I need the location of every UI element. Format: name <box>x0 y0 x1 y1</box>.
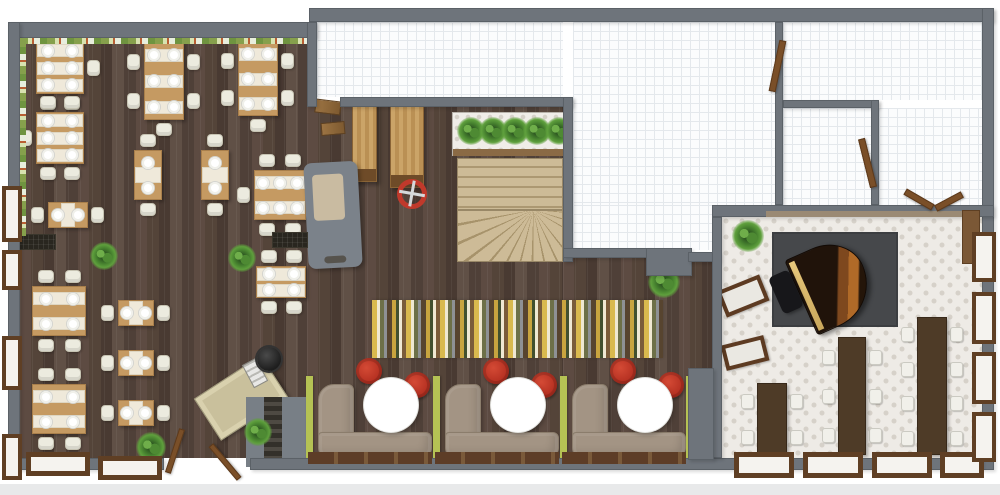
plate <box>242 73 254 85</box>
plate <box>262 73 274 85</box>
booth-window-sill[interactable] <box>308 452 432 464</box>
booth-divider-panel[interactable] <box>560 376 567 460</box>
chair[interactable] <box>281 90 294 106</box>
wall-room-divider-2 <box>783 100 879 108</box>
plate <box>148 101 160 113</box>
plate <box>274 177 286 189</box>
plate <box>263 268 275 280</box>
banquet-table[interactable] <box>757 383 787 455</box>
dining-table-4-seat[interactable] <box>32 286 86 336</box>
room-top-right-floor-ext <box>573 205 712 250</box>
dining-table-6-seat[interactable] <box>254 170 306 220</box>
table-runner <box>135 167 161 183</box>
bar-counter[interactable] <box>390 104 424 188</box>
chair[interactable] <box>38 368 54 381</box>
chair[interactable] <box>286 250 302 263</box>
plate <box>42 62 54 74</box>
plate <box>67 293 79 305</box>
chair[interactable] <box>901 362 914 377</box>
plate <box>288 268 300 280</box>
wall-room-divider-3 <box>871 100 879 205</box>
wood-shelf[interactable] <box>314 98 342 115</box>
chair[interactable] <box>157 305 170 321</box>
plate <box>72 209 84 221</box>
window[interactable] <box>2 336 22 390</box>
wall-stair-right <box>563 97 573 262</box>
plate <box>67 391 79 403</box>
chair[interactable] <box>790 394 803 409</box>
window[interactable] <box>26 452 90 476</box>
room-top-center-floor <box>317 22 563 97</box>
plate <box>168 49 180 61</box>
staircase-winder[interactable] <box>457 210 563 262</box>
chair[interactable] <box>869 350 882 365</box>
chair[interactable] <box>259 154 275 167</box>
booth-divider-panel[interactable] <box>433 376 440 460</box>
wood-shelf[interactable] <box>320 121 345 136</box>
chair[interactable] <box>127 54 140 70</box>
chair[interactable] <box>901 327 914 342</box>
plate <box>52 209 64 221</box>
floor-mat[interactable] <box>272 232 308 248</box>
chair[interactable] <box>156 123 172 136</box>
chair[interactable] <box>207 134 223 147</box>
plate <box>139 357 151 369</box>
plate <box>168 75 180 87</box>
floor-plan <box>0 0 1000 495</box>
window[interactable] <box>734 452 794 478</box>
chair[interactable] <box>31 207 44 223</box>
plate <box>142 182 154 194</box>
chair[interactable] <box>790 430 803 445</box>
chair[interactable] <box>187 54 200 70</box>
chair[interactable] <box>87 60 100 76</box>
window[interactable] <box>803 452 863 478</box>
chair[interactable] <box>65 339 81 352</box>
chair[interactable] <box>901 431 914 446</box>
chair[interactable] <box>741 394 754 409</box>
plate <box>139 407 151 419</box>
chair[interactable] <box>65 437 81 450</box>
banquet-table[interactable] <box>917 317 947 455</box>
window[interactable] <box>972 352 996 404</box>
exterior-ground <box>0 484 1000 495</box>
chair[interactable] <box>869 389 882 404</box>
chair[interactable] <box>822 428 835 443</box>
chair[interactable] <box>285 154 301 167</box>
chair[interactable] <box>261 250 277 263</box>
plate <box>42 115 54 127</box>
dining-table-4-seat[interactable] <box>32 384 86 434</box>
chair[interactable] <box>950 327 963 342</box>
plate <box>209 182 221 194</box>
chair[interactable] <box>38 339 54 352</box>
dining-table-6-seat[interactable] <box>238 42 278 116</box>
plate <box>257 202 269 214</box>
plate <box>40 293 52 305</box>
dining-table-2-seat[interactable] <box>118 300 154 326</box>
chair[interactable] <box>286 301 302 314</box>
plate <box>67 318 79 330</box>
chair[interactable] <box>140 134 156 147</box>
potted-plant[interactable] <box>228 244 256 272</box>
planter-box[interactable] <box>452 112 568 156</box>
plate <box>148 75 160 87</box>
dining-table-6-seat[interactable] <box>36 112 84 164</box>
plate <box>66 115 78 127</box>
service-counter[interactable] <box>303 161 362 270</box>
plate <box>121 357 133 369</box>
chair[interactable] <box>101 305 114 321</box>
chair[interactable] <box>38 270 54 283</box>
chair[interactable] <box>901 396 914 411</box>
chair[interactable] <box>91 207 104 223</box>
dining-table-4-seat[interactable] <box>256 266 306 298</box>
chair[interactable] <box>869 428 882 443</box>
window[interactable] <box>2 434 22 480</box>
plate <box>42 132 54 144</box>
wall-step-a <box>563 248 651 258</box>
banquet-table-top <box>757 383 787 455</box>
table-runner <box>202 167 228 183</box>
window[interactable] <box>98 456 162 480</box>
chair[interactable] <box>822 389 835 404</box>
window[interactable] <box>972 232 996 282</box>
chair[interactable] <box>101 355 114 371</box>
banquet-table-top <box>917 317 947 455</box>
ceiling-fan[interactable] <box>397 179 427 209</box>
wall-step-block <box>646 248 692 276</box>
dining-table-6-seat[interactable] <box>36 42 84 94</box>
dining-table-2-seat[interactable] <box>201 150 229 200</box>
floor-mat[interactable] <box>18 234 56 250</box>
green-wall-strip-top <box>20 38 307 44</box>
chair[interactable] <box>64 96 80 109</box>
plate <box>121 407 133 419</box>
plate <box>66 45 78 57</box>
plate <box>66 132 78 144</box>
chair[interactable] <box>38 437 54 450</box>
chair[interactable] <box>281 53 294 69</box>
window[interactable] <box>872 452 932 478</box>
staircase-upper-flight[interactable] <box>457 158 563 210</box>
chair[interactable] <box>127 93 140 109</box>
chair[interactable] <box>822 350 835 365</box>
chair[interactable] <box>65 270 81 283</box>
chair[interactable] <box>250 119 266 132</box>
plate <box>42 45 54 57</box>
chair[interactable] <box>221 53 234 69</box>
plate <box>40 416 52 428</box>
striped-area-rug[interactable] <box>372 300 663 358</box>
chair[interactable] <box>741 430 754 445</box>
booth-divider-panel[interactable] <box>306 376 313 460</box>
dining-table-2-seat[interactable] <box>118 400 154 426</box>
potted-plant[interactable] <box>244 418 272 446</box>
chair[interactable] <box>40 167 56 180</box>
room-far-right-upper-floor <box>783 22 982 100</box>
chair[interactable] <box>261 301 277 314</box>
chair[interactable] <box>157 355 170 371</box>
chair[interactable] <box>140 203 156 216</box>
banquet-table-top <box>838 337 866 455</box>
wall-dining-divider <box>307 22 317 107</box>
booth-window-sill[interactable] <box>435 452 559 464</box>
plate <box>242 98 254 110</box>
plate <box>288 284 300 296</box>
wall-top-right <box>309 8 994 22</box>
plate <box>67 416 79 428</box>
plate <box>291 202 303 214</box>
booth-table[interactable] <box>618 378 672 432</box>
plate <box>257 177 269 189</box>
booth-window-sill[interactable] <box>562 452 686 464</box>
dining-table-2-seat[interactable] <box>118 350 154 376</box>
chair[interactable] <box>65 368 81 381</box>
window[interactable] <box>2 250 22 290</box>
booth-table[interactable] <box>491 378 545 432</box>
window[interactable] <box>972 412 996 462</box>
booth-table[interactable] <box>364 378 418 432</box>
chair[interactable] <box>157 405 170 421</box>
plate <box>209 157 221 169</box>
chair[interactable] <box>187 93 200 109</box>
wall-piano-top-trim <box>766 211 980 217</box>
plate <box>291 177 303 189</box>
dining-table-2-seat[interactable] <box>48 202 88 228</box>
plate <box>168 101 180 113</box>
plate <box>66 62 78 74</box>
plate <box>263 284 275 296</box>
chair[interactable] <box>950 396 963 411</box>
room-top-right-floor <box>573 22 775 205</box>
stool[interactable] <box>257 347 281 371</box>
chair[interactable] <box>64 167 80 180</box>
potted-plant[interactable] <box>732 220 764 252</box>
plate <box>148 49 160 61</box>
plate <box>139 307 151 319</box>
room-right-small-a-floor <box>783 108 871 205</box>
dining-table-2-seat[interactable] <box>134 150 162 200</box>
chair[interactable] <box>207 203 223 216</box>
chair[interactable] <box>221 90 234 106</box>
plate <box>142 157 154 169</box>
plate <box>40 318 52 330</box>
chair[interactable] <box>237 187 250 203</box>
room-right-small-b-floor <box>879 108 982 205</box>
chair[interactable] <box>950 362 963 377</box>
banquet-table[interactable] <box>838 337 866 455</box>
window[interactable] <box>972 292 996 344</box>
plate <box>40 391 52 403</box>
wall-booth-right-block <box>688 368 714 460</box>
dining-table-6-seat[interactable] <box>144 42 184 120</box>
chair[interactable] <box>40 96 56 109</box>
chair[interactable] <box>101 405 114 421</box>
potted-plant[interactable] <box>90 242 118 270</box>
wall-left <box>8 22 20 470</box>
plate <box>121 307 133 319</box>
chair[interactable] <box>950 431 963 446</box>
wall-top-left <box>8 22 317 38</box>
window[interactable] <box>2 186 22 242</box>
plate <box>274 202 286 214</box>
plate <box>262 98 274 110</box>
wall-bar-top <box>340 97 573 107</box>
